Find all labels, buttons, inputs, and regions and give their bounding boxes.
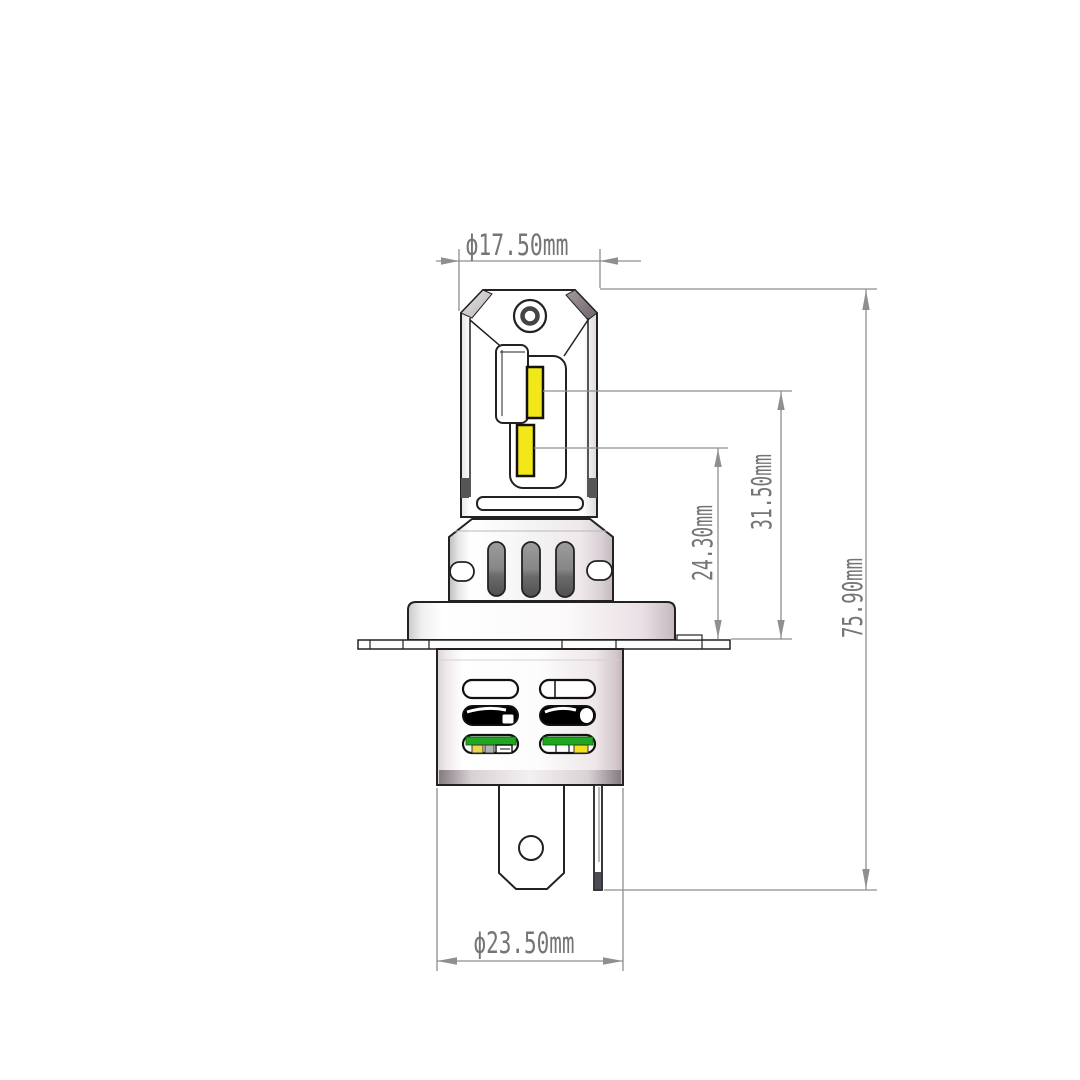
collar-notch-left [450,562,474,581]
heat-sink-barrel [437,649,623,785]
vent-pcb-right [540,735,595,753]
terminal-hole [519,836,543,860]
side-terminal [594,785,602,890]
head-base-lip [477,497,583,510]
technical-drawing-page: ϕ17.50mm 31.50mm 24.30mm 75.90mm ϕ23.50m… [0,0,1080,1080]
spade-terminal [499,785,564,889]
led-bracket [496,345,528,423]
dim-label-overall-height: 75.90mm [836,558,869,638]
mid-ring [408,602,675,640]
vent [463,680,518,698]
vent-pcb-left [463,735,518,753]
screw-boss [514,300,546,332]
collar-slot [522,542,540,597]
dim-label-low-led-height: 24.30mm [686,505,719,581]
collar [449,519,613,601]
collar-slot [488,542,505,596]
led-chip-low [517,425,534,476]
collar-notch-right [587,561,612,580]
dim-label-head-diameter: ϕ17.50mm [466,228,569,262]
dim-label-base-diameter: ϕ23.50mm [474,926,575,960]
collar-slot [556,542,574,597]
vent [540,680,595,698]
bulb-head [461,290,597,517]
dim-label-high-led-height: 31.50mm [745,454,778,530]
bulb-dimension-drawing: ϕ17.50mm 31.50mm 24.30mm 75.90mm ϕ23.50m… [0,0,1080,1080]
led-chip-high [527,367,543,418]
